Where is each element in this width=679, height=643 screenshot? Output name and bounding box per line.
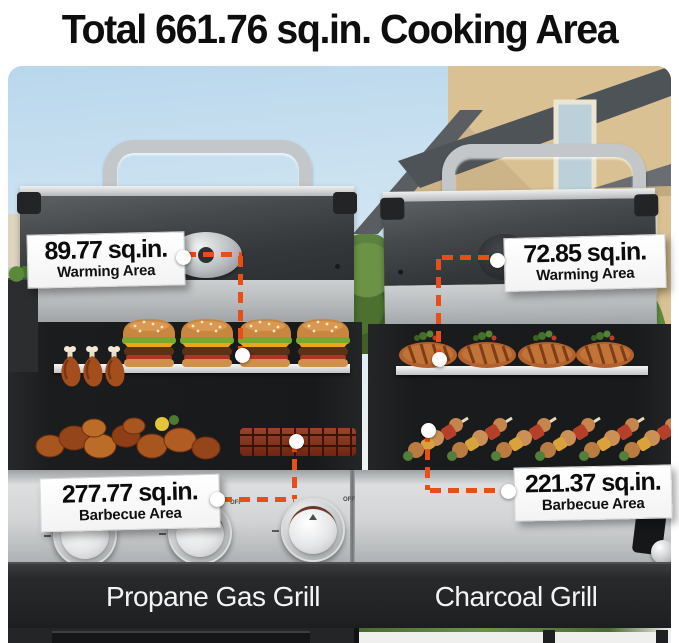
leader-dot [490, 253, 505, 268]
knob-off-label: OFF [343, 497, 355, 503]
steak [456, 330, 518, 370]
lid-corner-cap [634, 194, 658, 216]
steak [516, 330, 578, 370]
leader-dot [432, 352, 447, 367]
side-shelf [8, 278, 38, 372]
leader-dot [421, 423, 436, 438]
leader-line-warming-right [442, 255, 497, 260]
burger [178, 318, 236, 368]
rivet [398, 270, 403, 275]
page-title: Total 661.76 sq.in. Cooking Area [14, 1, 666, 57]
lid-corner-cap [380, 198, 404, 220]
drumstick [58, 346, 82, 388]
leader-line-barbecue-left [221, 497, 294, 502]
cart-leg [656, 630, 668, 643]
charcoal-grill-label: Charcoal Grill [376, 581, 656, 613]
leader-line-warming-left [238, 256, 243, 356]
steak [397, 330, 459, 370]
leader-line-barbecue-right [430, 488, 504, 493]
leader-line-barbecue-right [425, 431, 430, 490]
callout-warming-right: 72.85 sq.in. Warming Area [503, 234, 666, 292]
crank-knob [651, 540, 671, 564]
burger [120, 318, 178, 368]
panel-seam [350, 470, 355, 562]
lid-corner-cap [17, 192, 41, 214]
lid-rim [20, 186, 354, 196]
grill-name-band: Propane Gas Grill Charcoal Grill [8, 562, 671, 630]
leader-dot [289, 434, 304, 449]
barbecue-left-value: 277.77 sq.in. [45, 478, 214, 509]
roast-chicken-pile [34, 406, 238, 464]
leader-line-barbecue-left [292, 441, 297, 499]
lid-corner-cap [333, 192, 357, 214]
grass-strip [359, 628, 671, 632]
control-knob: OFF [281, 498, 345, 562]
warming-right-value: 72.85 sq.in. [509, 238, 660, 268]
knob-pointer [309, 510, 317, 520]
steak [574, 330, 636, 370]
barbecue-right-value: 221.37 sq.in. [520, 468, 667, 497]
callout-barbecue-left: 277.77 sq.in. Barbecue Area [39, 474, 220, 532]
leader-dot [235, 348, 250, 363]
leader-line-warming-right [436, 259, 441, 359]
cart-leg [543, 630, 555, 643]
barbecue-right-label: Barbecue Area [520, 495, 666, 515]
leader-dot [210, 492, 225, 507]
callout-warming-left: 89.77 sq.in. Warming Area [26, 231, 185, 288]
leader-line-warming-left [185, 252, 242, 257]
propane-gas-grill-label: Propane Gas Grill [38, 581, 388, 613]
product-photo: OFF OFF OFF Propane Gas Grill Charcoal G… [8, 66, 671, 643]
leader-dot [501, 484, 516, 499]
warming-left-value: 89.77 sq.in. [33, 235, 180, 265]
kebab-skewer [614, 410, 671, 464]
leader-dot [176, 250, 191, 265]
callout-barbecue-right: 221.37 sq.in. Barbecue Area [513, 464, 672, 521]
drumstick [80, 346, 104, 388]
burger [294, 318, 352, 368]
cabinet-door [52, 631, 310, 643]
rivet [335, 264, 340, 269]
